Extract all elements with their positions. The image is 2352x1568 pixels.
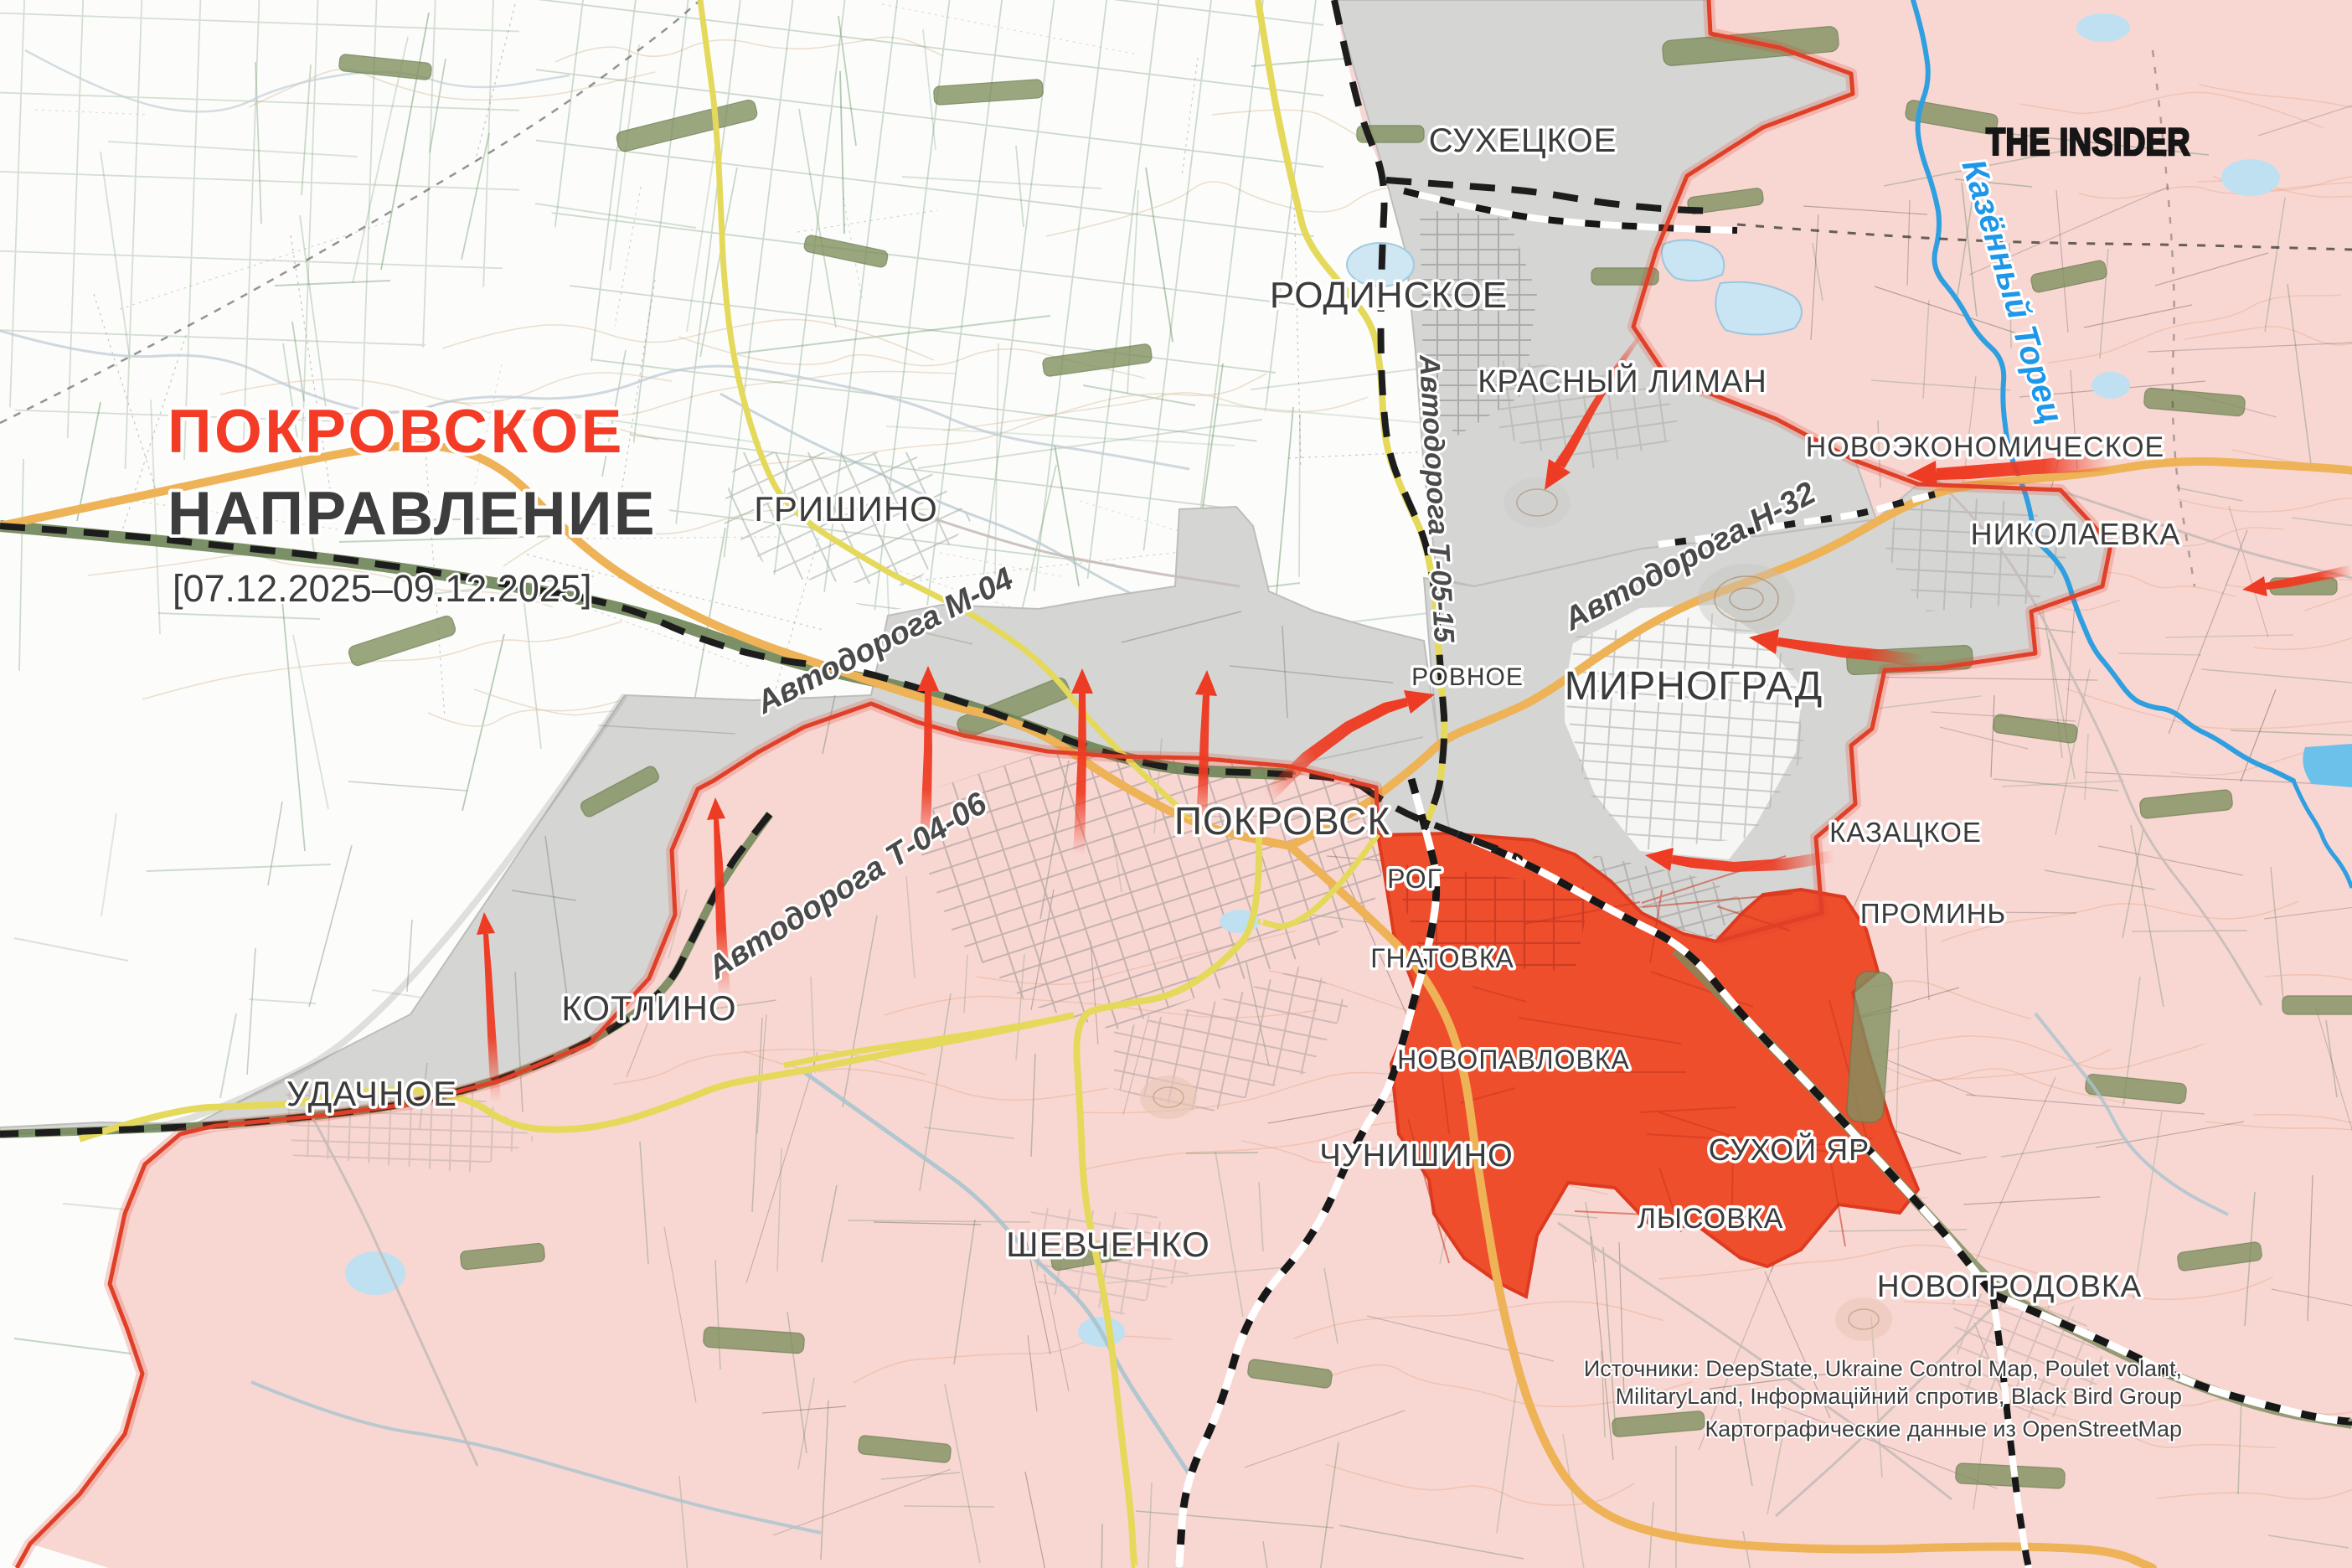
- svg-text:РОВНОЕ: РОВНОЕ: [1411, 663, 1524, 691]
- svg-text:ЛЫСОВКА: ЛЫСОВКА: [1638, 1203, 1784, 1235]
- svg-text:ШЕВЧЕНКО: ШЕВЧЕНКО: [1006, 1225, 1210, 1264]
- svg-text:МИРНОГРАД: МИРНОГРАД: [1565, 664, 1823, 709]
- svg-text:КРАСНЫЙ ЛИМАН: КРАСНЫЙ ЛИМАН: [1478, 362, 1767, 400]
- svg-text:ГРИШИНО: ГРИШИНО: [754, 489, 938, 529]
- svg-text:MilitaryLand, Інформаційний сп: MilitaryLand, Інформаційний спротив, Bla…: [1616, 1384, 2182, 1409]
- svg-text:THE INSIDER: THE INSIDER: [1986, 121, 2190, 163]
- svg-text:ПОКРОВСК: ПОКРОВСК: [1174, 799, 1390, 843]
- svg-text:СУХОЙ ЯР: СУХОЙ ЯР: [1709, 1132, 1870, 1167]
- svg-text:ПОКРОВСКОЕ: ПОКРОВСКОЕ: [168, 398, 625, 466]
- svg-text:РОДИНСКОЕ: РОДИНСКОЕ: [1270, 275, 1508, 316]
- svg-text:[07.12.2025–09.12.2025]: [07.12.2025–09.12.2025]: [173, 567, 591, 610]
- svg-text:КОТЛИНО: КОТЛИНО: [561, 988, 736, 1028]
- svg-text:НОВОПАВЛОВКА: НОВОПАВЛОВКА: [1397, 1044, 1630, 1075]
- svg-text:НИКОЛАЕВКА: НИКОЛАЕВКА: [1971, 517, 2181, 551]
- svg-text:Источники: DeepState, Ukraine: Источники: DeepState, Ukraine Control Ma…: [1584, 1356, 2182, 1381]
- svg-text:НОВОГРОДОВКА: НОВОГРОДОВКА: [1877, 1269, 2142, 1303]
- svg-text:Картографические данные из Ope: Картографические данные из OpenStreetMap: [1705, 1416, 2182, 1442]
- svg-text:КАЗАЦКОЕ: КАЗАЦКОЕ: [1829, 817, 1982, 848]
- svg-text:ПРОМИНЬ: ПРОМИНЬ: [1860, 898, 2006, 929]
- svg-text:НАПРАВЛЕНИЕ: НАПРАВЛЕНИЕ: [168, 480, 657, 548]
- svg-text:ЧУНИШИНО: ЧУНИШИНО: [1319, 1138, 1513, 1173]
- svg-text:ГНАТОВКА: ГНАТОВКА: [1370, 943, 1514, 973]
- svg-text:СУХЕЦКОЕ: СУХЕЦКОЕ: [1429, 122, 1617, 159]
- svg-text:НОВОЭКОНОМИЧЕСКОЕ: НОВОЭКОНОМИЧЕСКОЕ: [1806, 431, 2165, 463]
- svg-text:УДАЧНОЕ: УДАЧНОЕ: [286, 1074, 457, 1113]
- svg-text:РОГ: РОГ: [1387, 864, 1442, 894]
